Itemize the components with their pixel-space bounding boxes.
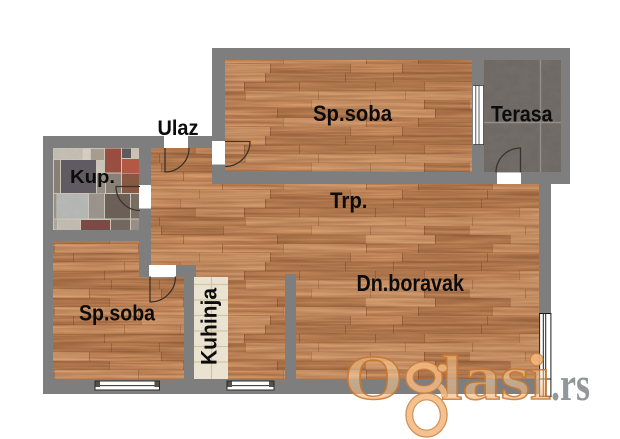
svg-text:Kup.: Kup. [70, 167, 115, 187]
svg-text:Sp.soba: Sp.soba [79, 301, 156, 326]
svg-text:Kuhinja: Kuhinja [197, 287, 222, 365]
svg-text:Terasa: Terasa [491, 101, 553, 126]
svg-text:O: O [344, 343, 403, 414]
svg-text:Sp.soba: Sp.soba [313, 101, 393, 126]
svg-text:Trp.: Trp. [330, 188, 368, 213]
svg-text:Dn.boravak: Dn.boravak [357, 270, 465, 296]
svg-text:Ulaz: Ulaz [158, 116, 199, 140]
svg-text:.rs: .rs [551, 358, 590, 411]
